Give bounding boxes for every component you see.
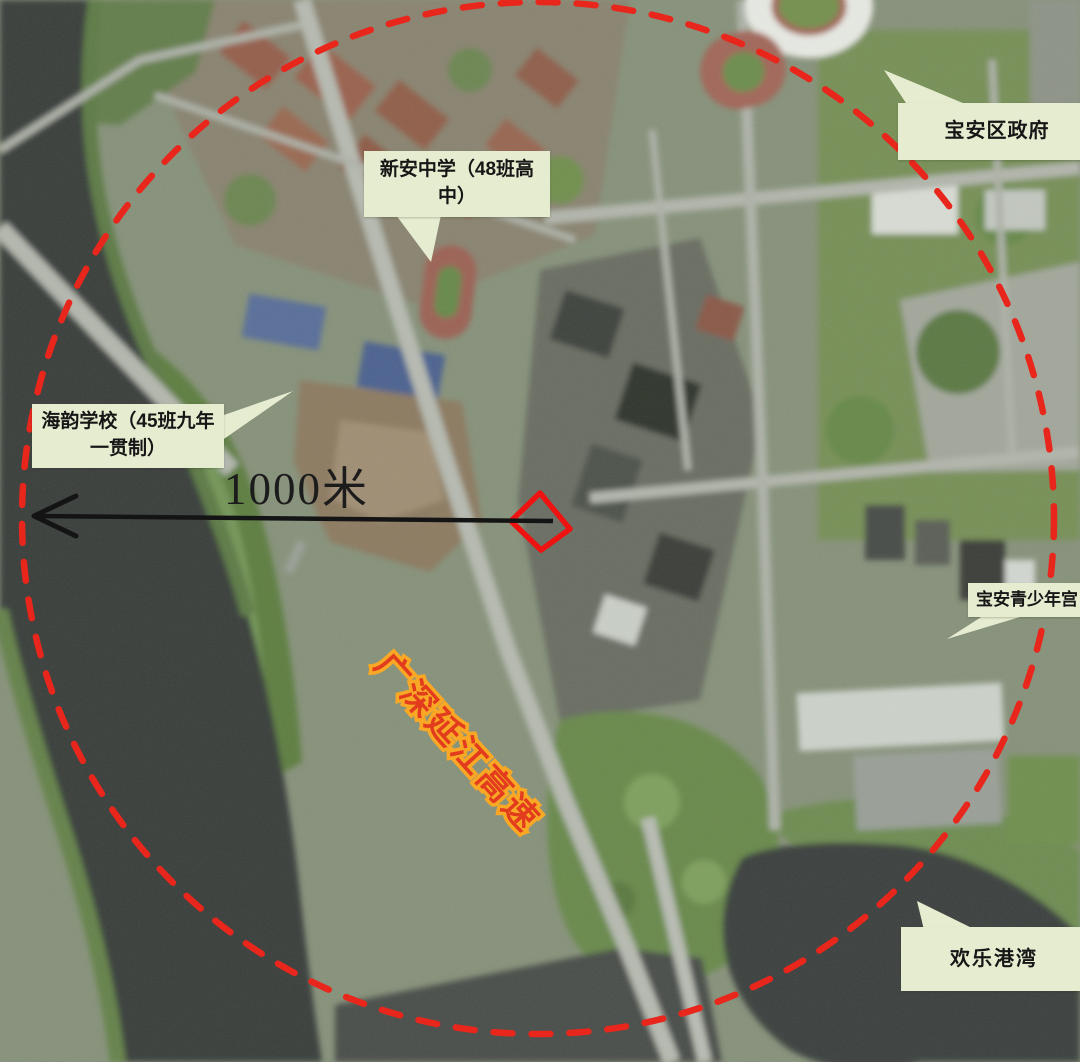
satellite-map-figure: 新安中学（48班高中） 宝安区政府 海韵学校（45班九年一贯制） 宝安青少年宫 … xyxy=(0,0,1080,1062)
callout-xinan-middle-school: 新安中学（48班高中） xyxy=(364,151,550,217)
tail-ohbay xyxy=(917,901,976,930)
tail-gov xyxy=(884,70,970,106)
tail-xinan xyxy=(396,215,441,262)
callout-baoan-district-government: 宝安区政府 xyxy=(898,103,1080,160)
callout-baoan-youth-palace: 宝安青少年宫 xyxy=(968,583,1080,617)
tail-youth xyxy=(947,614,1030,639)
scale-distance-label: 1000米 xyxy=(224,452,369,517)
tail-haiyun xyxy=(221,391,293,441)
callout-haiyun-school: 海韵学校（45班九年一贯制） xyxy=(32,404,224,468)
callout-oh-bay: 欢乐港湾 xyxy=(901,927,1080,991)
